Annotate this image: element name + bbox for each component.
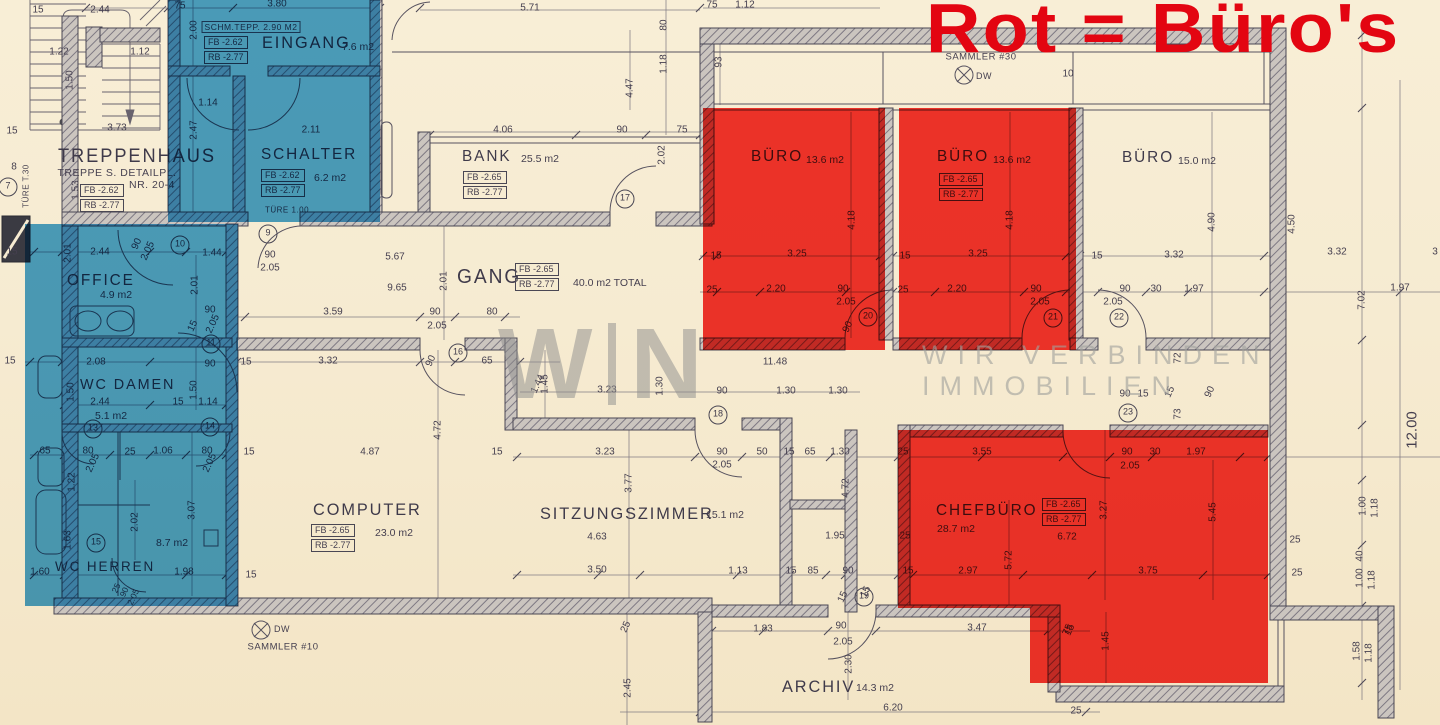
- fb-rb-box-eingang: FB -2.62RB -2.77: [204, 36, 248, 64]
- dimension-label: 15: [710, 251, 721, 262]
- dimension-label: 4.50: [1287, 214, 1298, 233]
- dimension-label: 90: [429, 307, 440, 318]
- dimension-label: 90: [616, 125, 627, 136]
- room-area-buero-1: 13.6 m2: [806, 154, 844, 166]
- dimension-label: 2.30: [844, 654, 855, 673]
- dimension-label: 7.02: [1357, 290, 1368, 309]
- rb-value: RB -2.77: [1042, 513, 1086, 526]
- dimension-label: 2.20: [766, 284, 785, 295]
- dimension-label: 2.44: [90, 247, 109, 258]
- dimension-label: 1.58: [1352, 641, 1363, 660]
- dimension-label: 1.44: [202, 248, 221, 259]
- dimension-label: 72: [1173, 352, 1184, 363]
- dimension-label: 4.90: [1207, 212, 1218, 231]
- dimension-label: 15: [186, 319, 201, 334]
- dimension-label: 3.07: [187, 500, 198, 519]
- dimension-label: 1.18: [1364, 643, 1375, 662]
- dimension-label: 90: [424, 354, 439, 369]
- door-number: 23: [1119, 404, 1138, 423]
- dimension-label: 75: [706, 0, 717, 11]
- dimension-label: 4.87: [360, 447, 379, 458]
- dimension-label: 93: [714, 56, 725, 67]
- dimension-label: 2.01: [63, 243, 74, 262]
- door-number: 20: [859, 308, 878, 327]
- room-area-bank: 25.5 m2: [521, 153, 559, 165]
- dimension-label: 1.30: [830, 447, 849, 458]
- dimension-label: 1.97: [1186, 447, 1205, 458]
- dimension-label: 1.50: [66, 382, 77, 401]
- dimension-label: 2.05: [1030, 297, 1049, 308]
- dimension-label: 2.44: [90, 397, 109, 408]
- dimension-label: 2.97: [958, 566, 977, 577]
- dimension-label: 15: [1091, 251, 1102, 262]
- door-number: 13: [84, 420, 103, 439]
- dimension-label: 90: [204, 359, 215, 370]
- room-area-computer: 23.0 m2: [375, 527, 413, 539]
- dimension-label: 1.45: [1101, 631, 1112, 650]
- room-label-wc-herren: WC HERREN: [55, 558, 155, 574]
- dimension-label: 1.50: [65, 70, 76, 89]
- dimension-label: 3.25: [787, 249, 806, 260]
- room-label-wc-damen: WC DAMEN: [80, 376, 175, 393]
- dimension-label: 90: [264, 250, 275, 261]
- dimension-label: 90: [841, 320, 856, 335]
- dimension-label: 15: [899, 251, 910, 262]
- dimension-label: 6.20: [883, 703, 902, 714]
- dimension-label: 90: [1203, 385, 1218, 400]
- dimension-label: 3.23: [595, 447, 614, 458]
- door-number: 15: [87, 534, 106, 553]
- dimension-label: 3.23: [597, 385, 616, 396]
- dimension-label: 3: [1432, 247, 1438, 258]
- dimension-label: 75: [174, 1, 185, 12]
- dimension-label: 80: [486, 307, 497, 318]
- dimension-label: 1.30: [655, 376, 666, 395]
- dimension-label: 2.05: [712, 460, 731, 471]
- dimension-label: 1.18: [659, 54, 670, 73]
- dimension-label: 3.73: [107, 123, 126, 134]
- room-label-chefbuero: CHEFBÜRO: [936, 502, 1038, 520]
- dimension-label: 65: [804, 447, 815, 458]
- fb-rb-box-computer: FB -2.65RB -2.77: [311, 524, 355, 552]
- dimension-label: 3.47: [967, 623, 986, 634]
- dimension-label: 3.25: [968, 249, 987, 260]
- dimension-label: 30: [1149, 447, 1160, 458]
- dimension-label: 1.22: [67, 472, 78, 491]
- dimension-label: 15: [1163, 385, 1178, 400]
- fb-value: FB -2.65: [1042, 498, 1086, 511]
- dimension-label: 1.18: [1367, 570, 1378, 589]
- room-label-archiv: ARCHIV: [782, 677, 855, 697]
- dimension-label: 15: [491, 447, 502, 458]
- dimension-label: 90: [716, 386, 727, 397]
- door-number: 19: [855, 588, 874, 607]
- dimension-label: 80: [659, 19, 670, 30]
- dimension-label: 1.45: [540, 374, 551, 393]
- dimension-label: 90: [837, 284, 848, 295]
- dimension-label: 1.95: [825, 531, 844, 542]
- dimension-label: 4.47: [625, 78, 636, 97]
- fb-value: FB -2.65: [311, 524, 355, 537]
- dimension-label: 65: [481, 356, 492, 367]
- floorplan-page: 152.44753.802.001.221.121.503.732.47151.…: [0, 0, 1440, 725]
- room-label-eingang: EINGANG: [262, 33, 351, 53]
- dimension-label: 1.13: [728, 566, 747, 577]
- dimension-label: 90: [1121, 447, 1132, 458]
- room-area-schalter: 6.2 m2: [314, 172, 346, 184]
- dimension-label: 90: [716, 447, 727, 458]
- dimension-label: 2.05: [833, 637, 852, 648]
- fb-rb-box-bank: FB -2.65RB -2.77: [463, 171, 507, 199]
- dimension-label: 2.00: [189, 20, 200, 39]
- dimension-label: 1.00: [1358, 496, 1369, 515]
- dimension-label: 2.08: [86, 357, 105, 368]
- fb-rb-box-treppenhaus: FB -2.62RB -2.77: [80, 184, 124, 212]
- fb-value: FB -2.65: [463, 171, 507, 184]
- labels-layer: 152.44753.802.001.221.121.503.732.47151.…: [0, 0, 1440, 725]
- room-label-gang: GANG: [457, 266, 521, 289]
- dimension-label: 8: [11, 162, 17, 173]
- rb-value: RB -2.77: [204, 51, 248, 64]
- annotation-note: DW: [976, 71, 992, 81]
- room-area-gang: 40.0 m2 TOTAL: [573, 277, 647, 289]
- door-number: 17: [616, 190, 635, 209]
- dimension-label: 3.75: [1138, 566, 1157, 577]
- dimension-label: 40: [1355, 550, 1366, 561]
- dimension-label: 3.27: [1099, 500, 1110, 519]
- dimension-label: 4.72: [433, 420, 444, 439]
- dimension-label: 15: [783, 447, 794, 458]
- dimension-label: 9.65: [387, 283, 406, 294]
- dimension-label: 3.32: [318, 356, 337, 367]
- door-number: 14: [201, 418, 220, 437]
- room-area-office: 4.9 m2: [100, 289, 132, 301]
- dimension-label: 15: [245, 570, 256, 581]
- dimension-label: 25: [619, 620, 634, 635]
- dimension-label: 1.97: [1390, 283, 1409, 294]
- dimension-label: 5.71: [520, 3, 539, 14]
- dimension-label: 6.72: [1057, 532, 1076, 543]
- fb-value: FB -2.65: [939, 173, 983, 186]
- rb-value: RB -2.77: [939, 188, 983, 201]
- dimension-label: 2.45: [623, 678, 634, 697]
- dimension-label: 15: [32, 5, 43, 16]
- room-area-sitzungszimmer: 15.1 m2: [706, 509, 744, 521]
- door-number: 16: [449, 344, 468, 363]
- dimension-label: 30: [1150, 284, 1161, 295]
- dimension-label: 1.83: [753, 624, 772, 635]
- door-number: 21: [1044, 309, 1063, 328]
- dimension-label: 75: [676, 125, 687, 136]
- dimension-label: 15: [6, 126, 17, 137]
- room-label-schalter: SCHALTER: [261, 146, 357, 164]
- room-area-buero-3: 15.0 m2: [1178, 155, 1216, 167]
- dimension-label: 2.05: [1120, 461, 1139, 472]
- dimension-label: 73: [1173, 408, 1184, 419]
- dimension-label: 25: [1291, 568, 1302, 579]
- annotation-note: TREPPE S. DETAILPL.: [57, 167, 176, 179]
- dimension-label: 3.32: [1327, 247, 1346, 258]
- rb-value: RB -2.77: [515, 278, 559, 291]
- rb-value: RB -2.77: [311, 539, 355, 552]
- dimension-label: 1.18: [1370, 498, 1381, 517]
- room-label-buero-2: BÜRO: [937, 148, 989, 166]
- dimension-label: 15: [240, 357, 251, 368]
- dimension-label: 2.05: [836, 297, 855, 308]
- dimension-label: 25: [899, 531, 910, 542]
- dimension-label: 4.18: [1005, 210, 1016, 229]
- dimension-label: 65: [39, 446, 50, 457]
- rb-value: RB -2.77: [463, 186, 507, 199]
- dimension-label: 50: [756, 447, 767, 458]
- room-area-wc-herren: 8.7 m2: [156, 537, 188, 549]
- room-label-bank: BANK: [462, 148, 512, 166]
- legend-title: Rot = Büro's: [926, 0, 1400, 68]
- dimension-label: 1.06: [153, 446, 172, 457]
- room-area-buero-2: 13.6 m2: [993, 154, 1031, 166]
- dimension-label: 3.32: [1164, 250, 1183, 261]
- room-area-eingang: 7.6 m2: [342, 41, 374, 53]
- dimension-label: 90: [1030, 284, 1041, 295]
- dimension-label: 2.47: [189, 120, 200, 139]
- dimension-label: 85: [807, 566, 818, 577]
- dimension-label: 90: [1119, 389, 1130, 400]
- dimension-label: 2.01: [439, 271, 450, 290]
- door-number: 22: [1110, 309, 1129, 328]
- room-label-sitzungszimmer: SITZUNGSZIMMER: [540, 504, 714, 524]
- dimension-label: 15: [4, 356, 15, 367]
- dimension-label: 11.48: [763, 357, 787, 368]
- fb-rb-box-schalter: FB -2.62RB -2.77: [261, 169, 305, 197]
- dimension-label: 15: [6, 247, 17, 258]
- dimension-label: 25: [124, 447, 135, 458]
- dimension-label: 10: [1062, 69, 1073, 80]
- dimension-label: 2.05: [204, 313, 222, 335]
- door-number: 11: [202, 335, 221, 354]
- dimension-label: 1.12: [735, 0, 754, 11]
- room-label-treppenhaus: TREPPENHAUS: [58, 146, 216, 168]
- dimension-label: 25: [897, 447, 908, 458]
- fb-value: FB -2.62: [261, 169, 305, 182]
- dimension-label: 2.11: [302, 125, 321, 136]
- dimension-label: 90: [1119, 284, 1130, 295]
- dimension-label: 25: [1289, 535, 1300, 546]
- fb-value: FB -2.62: [80, 184, 124, 197]
- dimension-label: 1.14: [198, 98, 217, 109]
- annotation-note: SAMMLER #10: [248, 642, 319, 653]
- door-number: 7: [0, 178, 18, 197]
- dimension-label: 5.45: [1208, 502, 1219, 521]
- dimension-label: 15: [1137, 389, 1148, 400]
- annotation-note: SCHM.TEPP. 2.90 M2: [202, 21, 301, 33]
- dimension-label: 2.20: [947, 284, 966, 295]
- dimension-label: 1.14: [198, 397, 217, 408]
- fb-value: FB -2.65: [515, 263, 559, 276]
- fb-rb-box-buero-2: FB -2.65RB -2.77: [939, 173, 983, 201]
- dimension-label: 1.63: [63, 530, 74, 549]
- dimension-label: 1.00: [1355, 568, 1366, 587]
- fb-value: FB -2.62: [204, 36, 248, 49]
- dimension-label: 1.30: [828, 386, 847, 397]
- room-label-buero-3: BÜRO: [1122, 149, 1174, 167]
- dimension-label: 4.06: [493, 125, 512, 136]
- dimension-label: 12.00: [1404, 411, 1421, 449]
- dimension-label: 2.02: [657, 145, 668, 164]
- rb-value: RB -2.77: [80, 199, 124, 212]
- dimension-label: 15: [836, 590, 851, 605]
- rb-value: RB -2.77: [261, 184, 305, 197]
- room-label-computer: COMPUTER: [313, 500, 422, 520]
- door-number: 9: [259, 225, 278, 244]
- room-label-office: OFFICE: [67, 272, 135, 290]
- dimension-label: 15: [902, 566, 913, 577]
- dimension-label: 3.59: [323, 307, 342, 318]
- dimension-label: 2.02: [130, 512, 141, 531]
- dimension-label: 2.05: [260, 263, 279, 274]
- room-area-chefbuero: 28.7 m2: [937, 523, 975, 535]
- room-area-wc-damen: 5.1 m2: [95, 410, 127, 422]
- dimension-label: 2.01: [190, 275, 201, 294]
- dimension-label: 25: [897, 285, 908, 296]
- dimension-label: 90: [835, 621, 846, 632]
- room-area-archiv: 14.3 m2: [856, 682, 894, 694]
- dimension-label: 1.12: [130, 47, 149, 58]
- dimension-label: 4.63: [587, 532, 606, 543]
- dimension-label: 4.72: [841, 478, 852, 497]
- annotation-note: DW: [274, 624, 290, 634]
- dimension-label: 15: [243, 447, 254, 458]
- dimension-label: 2.05: [427, 321, 446, 332]
- fb-rb-box-gang: FB -2.65RB -2.77: [515, 263, 559, 291]
- door-number: 10: [171, 236, 190, 255]
- dimension-label: 1.22: [49, 47, 68, 58]
- dimension-label: 1.60: [30, 567, 49, 578]
- dimension-label: 90: [842, 566, 853, 577]
- annotation-note: TÜRE T.30: [22, 164, 31, 207]
- dimension-label: 3.55: [972, 447, 991, 458]
- door-number: 18: [709, 406, 728, 425]
- dimension-label: 5.67: [385, 252, 404, 263]
- dimension-label: 25: [706, 285, 717, 296]
- dimension-label: 1.98: [174, 567, 193, 578]
- annotation-note: TÜRE 1.00: [265, 206, 309, 215]
- dimension-label: 3.77: [624, 473, 635, 492]
- dimension-label: 2.05: [1103, 297, 1122, 308]
- fb-rb-box-chefbuero: FB -2.65RB -2.77: [1042, 498, 1086, 526]
- dimension-label: 4.18: [847, 210, 858, 229]
- dimension-label: 3.80: [267, 0, 286, 10]
- annotation-note: NR. 20-4: [129, 179, 175, 191]
- dimension-label: 15: [172, 397, 183, 408]
- dimension-label: 5.72: [1004, 550, 1015, 569]
- dimension-label: 1.30: [776, 386, 795, 397]
- room-label-buero-1: BÜRO: [751, 148, 803, 166]
- dimension-label: 2.44: [90, 5, 109, 16]
- dimension-label: 1.97: [1184, 284, 1203, 295]
- dimension-label: 15: [785, 566, 796, 577]
- dimension-label: 3.50: [587, 565, 606, 576]
- dimension-label: 25: [1070, 706, 1081, 717]
